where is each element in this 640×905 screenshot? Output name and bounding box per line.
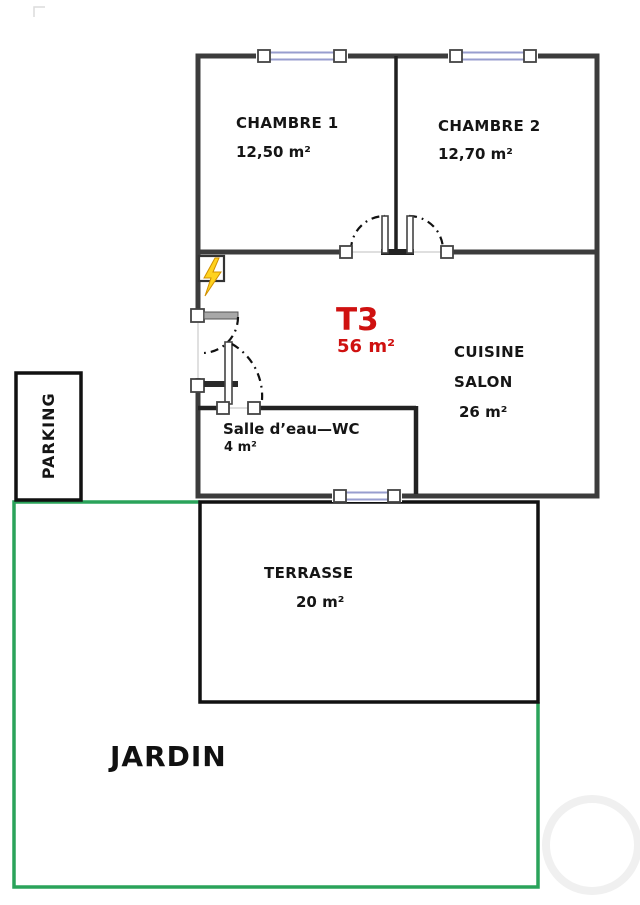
cuisine-salon-area: 26 m² <box>459 404 507 421</box>
door-jamb <box>217 402 229 414</box>
window-chambre2 <box>448 50 538 62</box>
door-jamb <box>441 246 453 258</box>
salle-eau-wc-area: 4 m² <box>224 441 257 455</box>
salle-eau-wc-label: Salle d’eau—WC <box>223 421 360 438</box>
chambre1-area: 12,50 m² <box>236 144 311 161</box>
chambre1-label: CHAMBRE 1 <box>236 115 339 132</box>
door-jamb <box>191 379 204 392</box>
door-jamb <box>340 246 352 258</box>
parking-label: PARKING <box>40 371 58 501</box>
door-leaf-chambre1 <box>382 216 388 253</box>
chambre2-label: CHAMBRE 2 <box>438 118 541 135</box>
terrasse-area: 20 m² <box>296 594 344 611</box>
floor-plan-linework <box>0 0 640 905</box>
entry-wall-stub <box>204 381 238 387</box>
door-leaf-chambre2 <box>407 216 413 253</box>
terrasse-label: TERRASSE <box>264 565 354 582</box>
watermark-circle <box>546 799 638 891</box>
cuisine-label: CUISINE <box>454 344 525 361</box>
window-chambre1 <box>256 50 348 62</box>
jardin-label: JARDIN <box>110 742 227 773</box>
salon-label: SALON <box>454 374 513 391</box>
chambre2-area: 12,70 m² <box>438 146 513 163</box>
door-jamb <box>248 402 260 414</box>
terrasse-outline <box>200 502 538 702</box>
corner-artifact <box>34 7 45 17</box>
window-salon-south <box>332 490 402 502</box>
entry-door-leaf <box>204 312 238 319</box>
unit-area-label: 56 m² <box>337 337 395 357</box>
floor-plan: CHAMBRE 1 12,50 m² CHAMBRE 2 12,70 m² T3… <box>0 0 640 905</box>
unit-type-label: T3 <box>336 303 379 337</box>
door-leaf-salle-eau <box>225 342 232 404</box>
door-jamb <box>191 309 204 322</box>
